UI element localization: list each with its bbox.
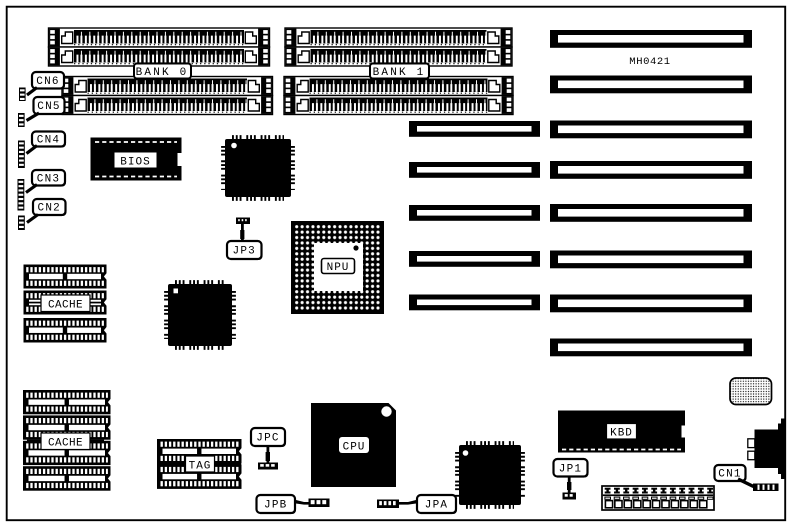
svg-text:CACHE: CACHE (48, 438, 83, 450)
svg-text:KBD: KBD (610, 428, 633, 440)
svg-text:NPU: NPU (327, 262, 350, 274)
svg-text:CN2: CN2 (38, 203, 61, 215)
svg-text:TAG: TAG (189, 460, 212, 472)
svg-text:BANK 0: BANK 0 (136, 67, 189, 79)
svg-text:JPB: JPB (264, 500, 287, 512)
svg-text:CN4: CN4 (37, 135, 60, 147)
svg-text:BIOS: BIOS (120, 156, 150, 168)
svg-text:CN6: CN6 (36, 76, 59, 88)
svg-text:JPC: JPC (256, 433, 279, 445)
svg-text:JP3: JP3 (233, 246, 256, 258)
svg-text:JP1: JP1 (559, 463, 582, 475)
svg-text:JPA: JPA (425, 500, 448, 512)
svg-text:MH0421: MH0421 (629, 56, 670, 68)
svg-text:BANK 1: BANK 1 (373, 67, 426, 79)
svg-text:CN5: CN5 (37, 101, 60, 113)
svg-text:CACHE: CACHE (48, 300, 83, 312)
svg-text:CPU: CPU (343, 441, 366, 453)
svg-text:CN3: CN3 (37, 173, 60, 185)
